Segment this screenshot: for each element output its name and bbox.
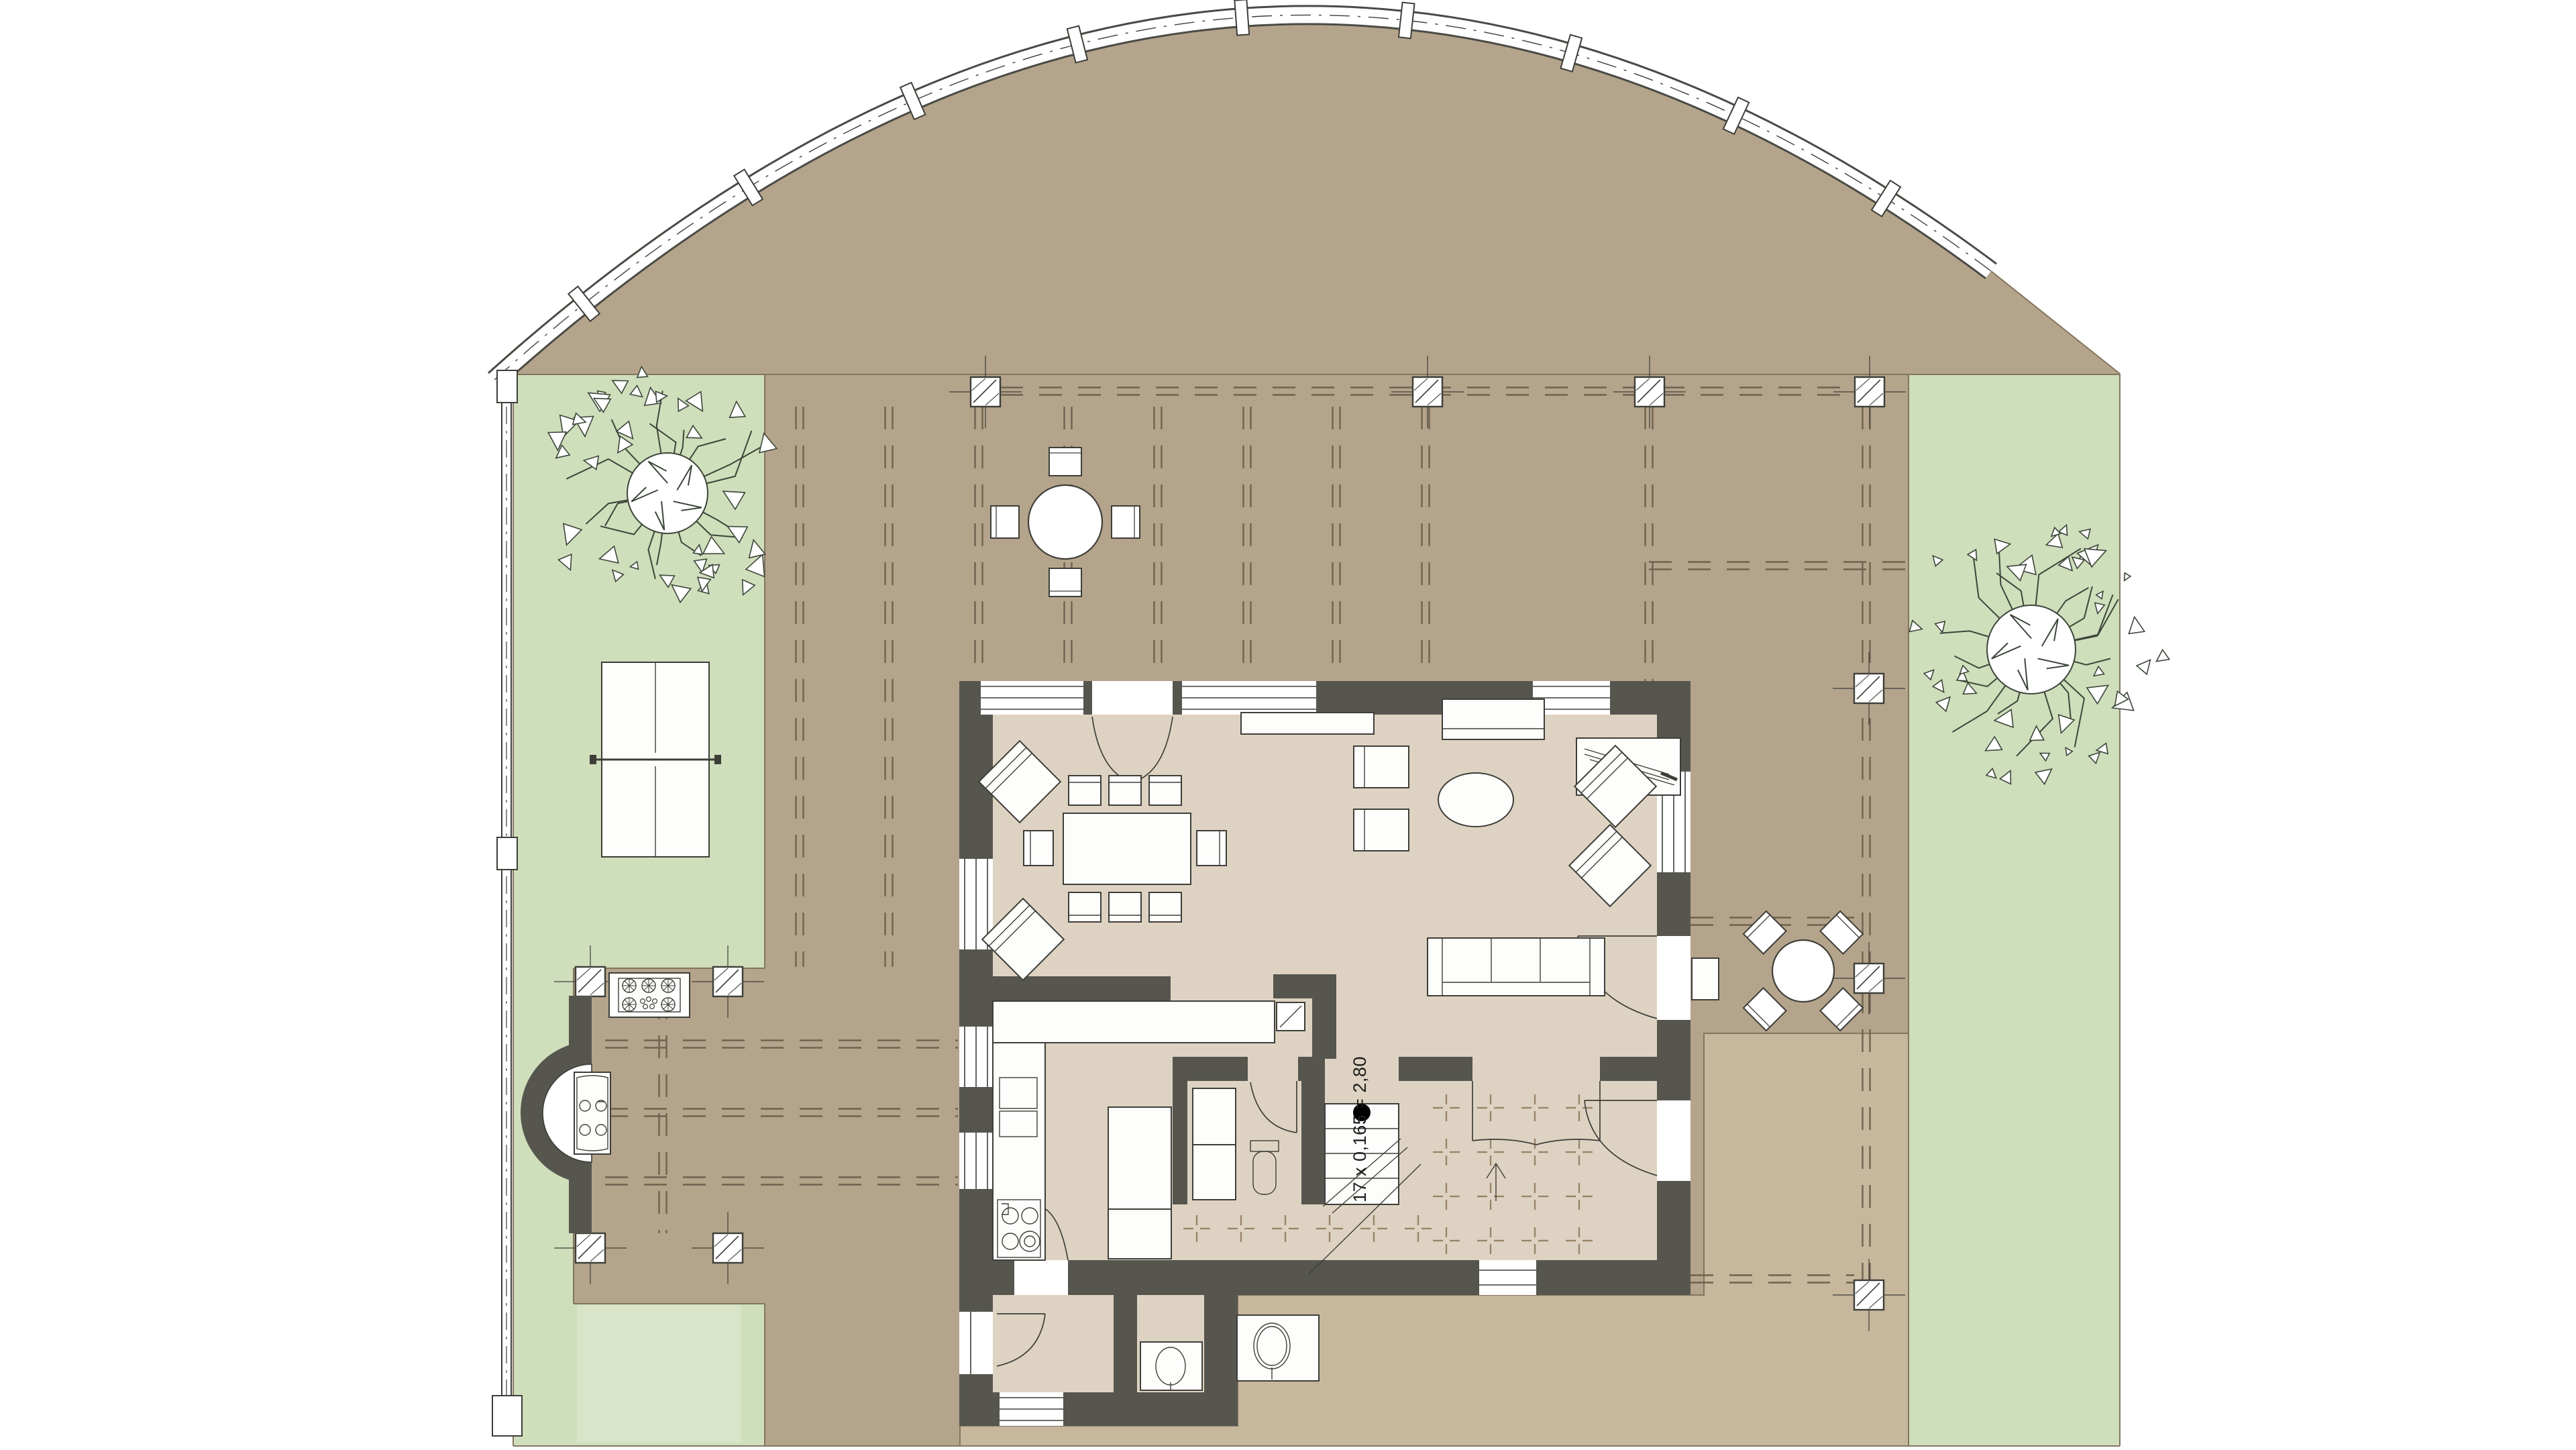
vanity	[1140, 1342, 1202, 1390]
stair-label: 17 x 0,165 = 2,80	[1350, 1056, 1370, 1202]
outdoor-chair	[1049, 448, 1081, 476]
window-west-3	[959, 1133, 993, 1189]
window-north-1	[981, 681, 1083, 715]
window-west-2	[959, 1027, 993, 1087]
kitchen-counter-top	[993, 1001, 1275, 1043]
ping-pong-table	[590, 662, 721, 857]
window-west-entry	[959, 1312, 993, 1374]
door-mat-east	[1692, 958, 1719, 1000]
outdoor-washbasin	[1237, 1315, 1319, 1381]
floor-plan: 17 x 0,165 = 2,80	[0, 0, 2576, 1450]
outdoor-chair	[1049, 568, 1081, 597]
window-north-2	[1182, 681, 1316, 715]
outdoor-chair	[1112, 506, 1140, 538]
armchair-2	[1354, 809, 1409, 851]
arch-post	[1234, 0, 1249, 36]
bathroom	[1140, 1342, 1202, 1390]
fence-post	[497, 837, 517, 870]
armchair-1	[1354, 746, 1409, 788]
shelf-2	[1193, 1145, 1236, 1200]
window-south-bump	[1000, 1392, 1063, 1426]
fence-post	[497, 370, 517, 403]
tall-cabinet-1	[1108, 1107, 1171, 1209]
sideboard	[1241, 713, 1374, 734]
fence-post	[492, 1396, 522, 1436]
sofa	[1428, 938, 1605, 996]
lawn-patch-bottom	[577, 1305, 741, 1443]
shelf-1	[1193, 1088, 1236, 1145]
coffee-table	[1438, 773, 1513, 827]
dining-table	[1063, 813, 1191, 884]
outdoor-chair	[991, 506, 1019, 538]
oven-door	[574, 1072, 610, 1154]
kitchen-counter-west	[993, 1043, 1045, 1260]
tall-cabinet-2	[1108, 1209, 1171, 1259]
bench-north	[1442, 699, 1544, 739]
